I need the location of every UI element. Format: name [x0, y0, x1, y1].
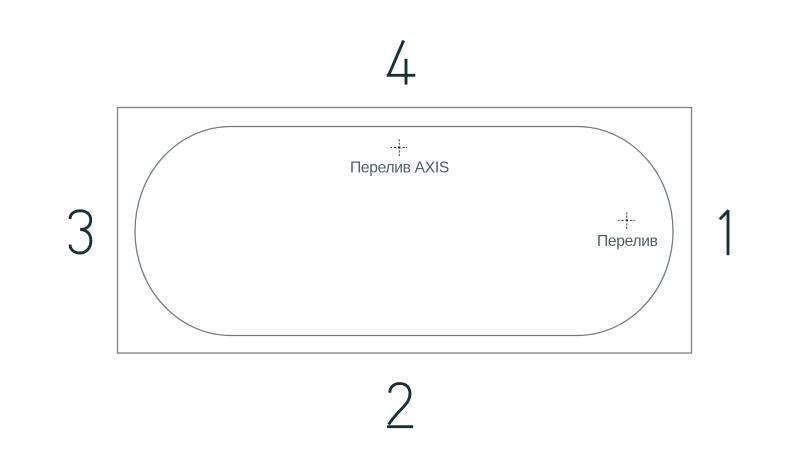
svg-text:Перелив: Перелив [597, 233, 658, 250]
svg-text:Перелив AXIS: Перелив AXIS [350, 159, 449, 176]
